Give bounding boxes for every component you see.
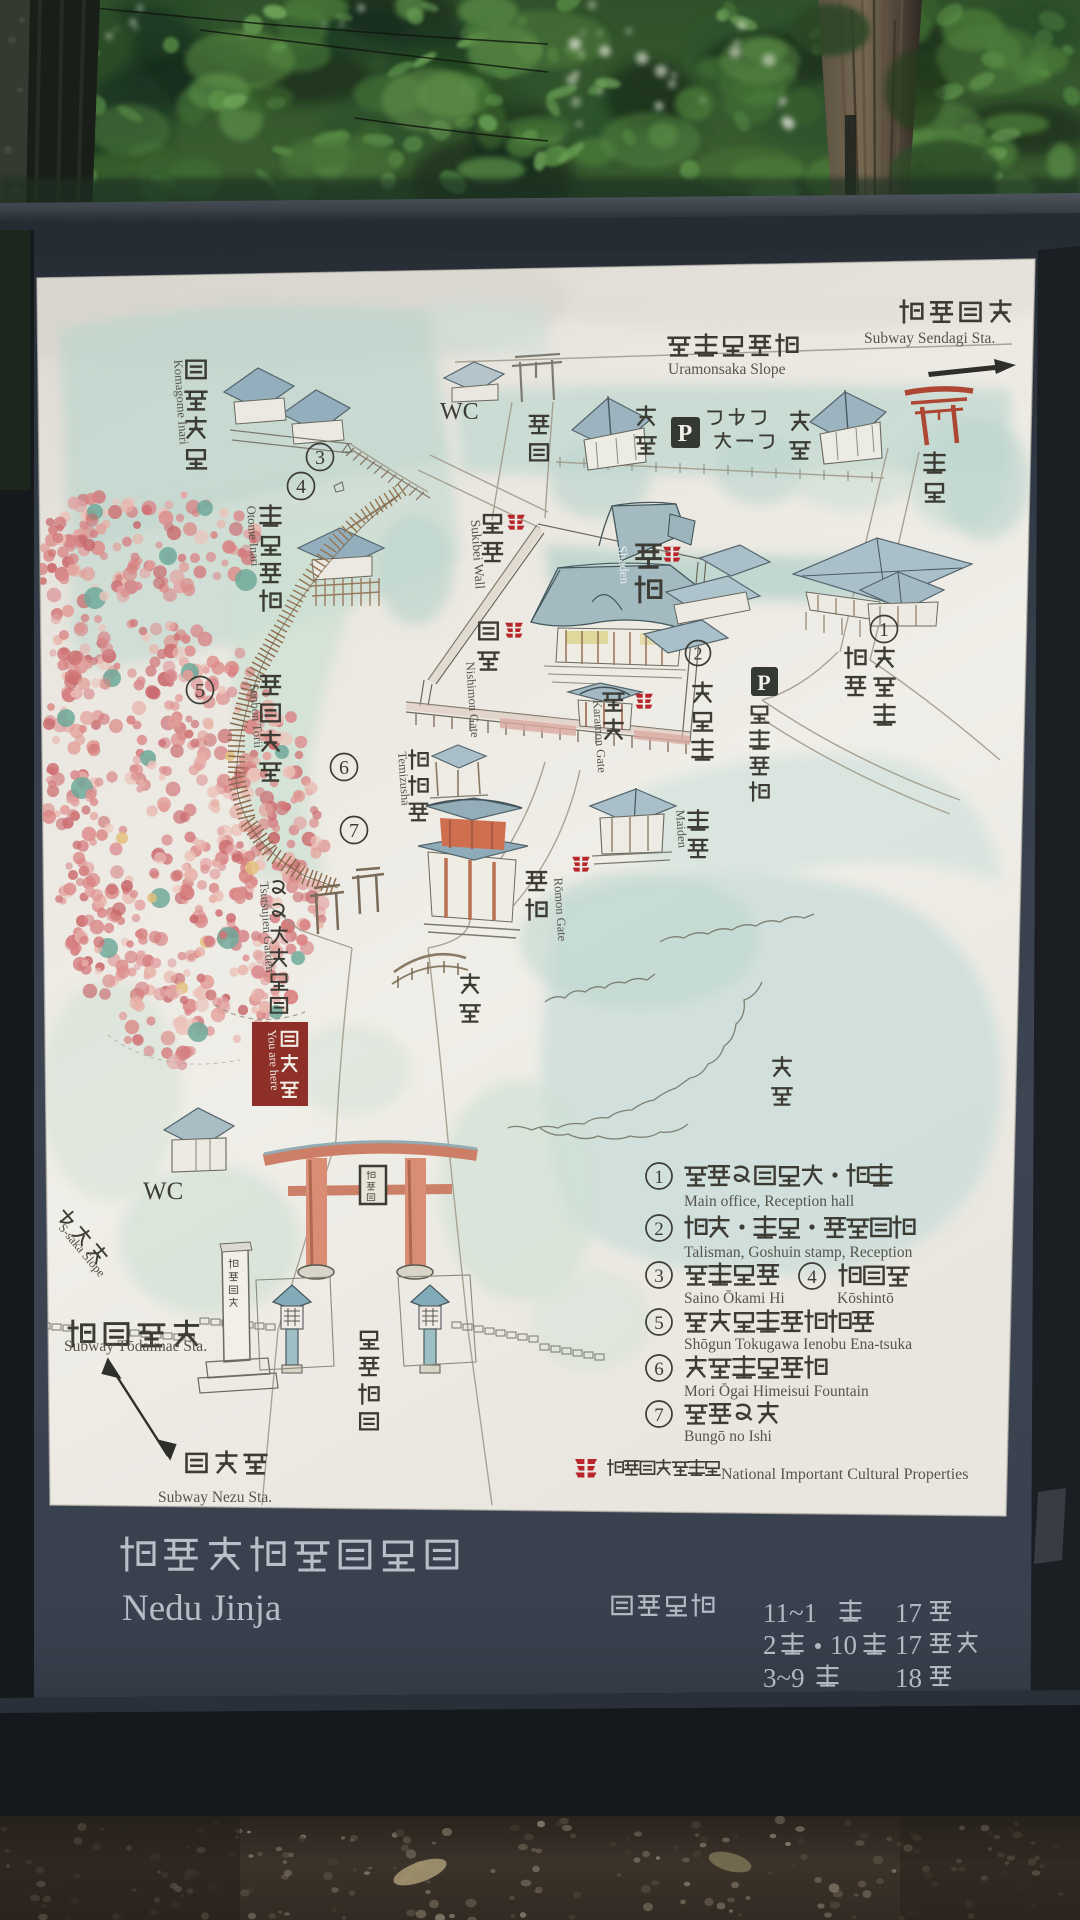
svg-text:4: 4 bbox=[296, 476, 306, 498]
svg-text:Kōshintō: Kōshintō bbox=[837, 1290, 894, 1307]
svg-text:WC: WC bbox=[143, 1178, 183, 1205]
svg-text:Shōgun Tokugawa Ienobu Ena-tsu: Shōgun Tokugawa Ienobu Ena-tsuka bbox=[684, 1336, 912, 1353]
svg-text:7: 7 bbox=[654, 1405, 664, 1426]
svg-text:10: 10 bbox=[830, 1630, 857, 1660]
svg-text:Main office, Reception hall: Main office, Reception hall bbox=[684, 1193, 854, 1210]
svg-text:Subway Tōdaimae Sta.: Subway Tōdaimae Sta. bbox=[64, 1338, 207, 1355]
svg-text:2: 2 bbox=[694, 644, 703, 664]
svg-text:1: 1 bbox=[654, 1167, 664, 1188]
svg-text:3: 3 bbox=[654, 1266, 664, 1287]
svg-text:P: P bbox=[678, 421, 693, 447]
svg-text:11~1: 11~1 bbox=[763, 1598, 817, 1628]
svg-text:6: 6 bbox=[654, 1359, 664, 1380]
svg-text:Mori Ōgai Himeisui Fountain: Mori Ōgai Himeisui Fountain bbox=[684, 1383, 869, 1400]
svg-text:Saino Ōkami Hi: Saino Ōkami Hi bbox=[684, 1290, 785, 1307]
svg-text:18: 18 bbox=[895, 1663, 922, 1693]
svg-text:3: 3 bbox=[315, 447, 325, 469]
svg-text:5: 5 bbox=[654, 1313, 664, 1334]
svg-text:Shaden: Shaden bbox=[615, 545, 633, 585]
svg-text:1: 1 bbox=[879, 619, 889, 641]
svg-text:Subway Sendagi Sta.: Subway Sendagi Sta. bbox=[864, 330, 995, 347]
svg-text:Nedu Jinja: Nedu Jinja bbox=[122, 1588, 281, 1629]
svg-text:Maiden: Maiden bbox=[673, 809, 690, 849]
svg-text:Bungō no Ishi: Bungō no Ishi bbox=[684, 1428, 773, 1445]
svg-text:4: 4 bbox=[807, 1267, 817, 1288]
svg-text:P: P bbox=[757, 670, 770, 695]
svg-text:3~9: 3~9 bbox=[763, 1663, 805, 1693]
svg-text:WC: WC bbox=[440, 399, 479, 425]
svg-text:Subway Nezu Sta.: Subway Nezu Sta. bbox=[158, 1489, 272, 1506]
svg-text:2: 2 bbox=[654, 1219, 664, 1240]
svg-text:Uramonsaka Slope: Uramonsaka Slope bbox=[668, 361, 786, 378]
svg-text:6: 6 bbox=[339, 757, 349, 779]
svg-text:17: 17 bbox=[895, 1598, 922, 1628]
svg-text:7: 7 bbox=[349, 820, 359, 842]
svg-text:17: 17 bbox=[895, 1630, 922, 1660]
svg-text:2: 2 bbox=[763, 1630, 777, 1660]
svg-text:5: 5 bbox=[195, 680, 205, 702]
svg-text:Talisman, Goshuin stamp, Recep: Talisman, Goshuin stamp, Reception bbox=[684, 1244, 913, 1261]
svg-text:National Important Cultural Pr: National Important Cultural Properties bbox=[721, 1466, 969, 1483]
